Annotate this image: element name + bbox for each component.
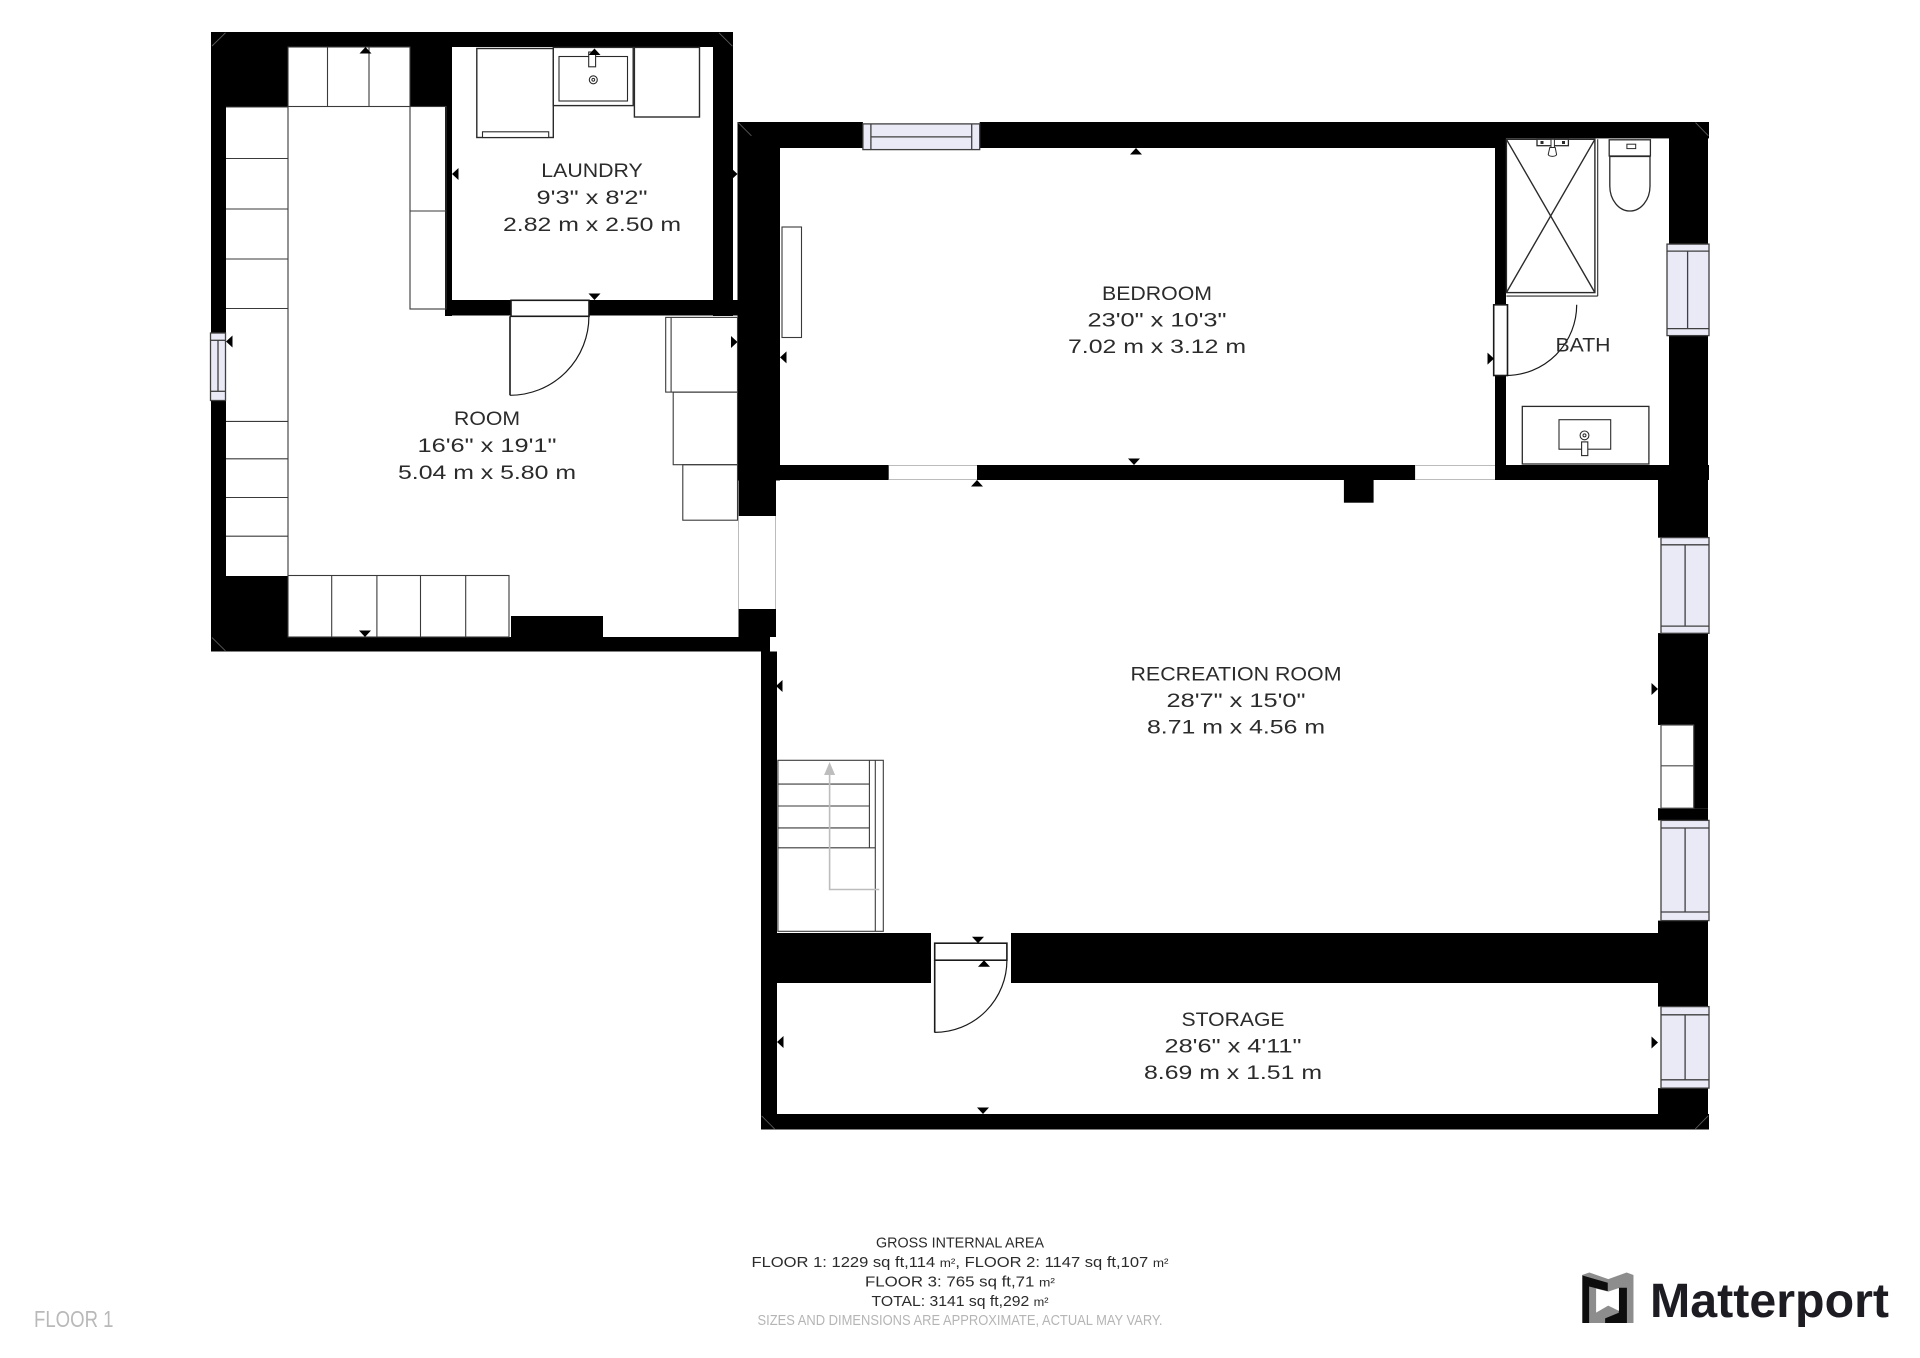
svg-text:FLOOR 3: 765 sq ft,71 m²: FLOOR 3: 765 sq ft,71 m² bbox=[865, 1274, 1055, 1290]
svg-text:16'6" x 19'1": 16'6" x 19'1" bbox=[418, 436, 557, 457]
svg-text:LAUNDRY: LAUNDRY bbox=[541, 161, 643, 182]
svg-text:Matterport: Matterport bbox=[1650, 1275, 1889, 1328]
svg-text:BEDROOM: BEDROOM bbox=[1102, 284, 1212, 305]
svg-text:8.69 m x 1.51 m: 8.69 m x 1.51 m bbox=[1144, 1063, 1322, 1084]
svg-text:9'3" x 8'2": 9'3" x 8'2" bbox=[537, 188, 648, 209]
svg-text:BATH: BATH bbox=[1556, 335, 1611, 356]
svg-text:STORAGE: STORAGE bbox=[1182, 1010, 1285, 1031]
svg-text:5.04 m x 5.80 m: 5.04 m x 5.80 m bbox=[398, 463, 576, 484]
svg-text:TOTAL: 3141 sq ft,292 m²: TOTAL: 3141 sq ft,292 m² bbox=[872, 1294, 1049, 1310]
svg-text:28'6" x 4'11": 28'6" x 4'11" bbox=[1165, 1036, 1302, 1057]
svg-text:28'7" x 15'0": 28'7" x 15'0" bbox=[1167, 691, 1306, 712]
svg-text:SIZES AND DIMENSIONS ARE APPRO: SIZES AND DIMENSIONS ARE APPROXIMATE, AC… bbox=[758, 1313, 1163, 1329]
svg-text:RECREATION ROOM: RECREATION ROOM bbox=[1131, 664, 1342, 685]
svg-text:2.82 m x 2.50 m: 2.82 m x 2.50 m bbox=[503, 215, 681, 236]
svg-text:GROSS INTERNAL AREA: GROSS INTERNAL AREA bbox=[876, 1235, 1044, 1251]
svg-text:23'0" x 10'3": 23'0" x 10'3" bbox=[1088, 310, 1227, 331]
svg-text:FLOOR 1: FLOOR 1 bbox=[34, 1306, 114, 1332]
svg-text:8.71 m x 4.56 m: 8.71 m x 4.56 m bbox=[1147, 717, 1325, 738]
svg-text:FLOOR 1: 1229 sq ft,114 m², FL: FLOOR 1: 1229 sq ft,114 m², FLOOR 2: 114… bbox=[752, 1255, 1169, 1271]
svg-text:7.02 m x 3.12 m: 7.02 m x 3.12 m bbox=[1068, 337, 1246, 358]
svg-text:ROOM: ROOM bbox=[454, 409, 520, 430]
